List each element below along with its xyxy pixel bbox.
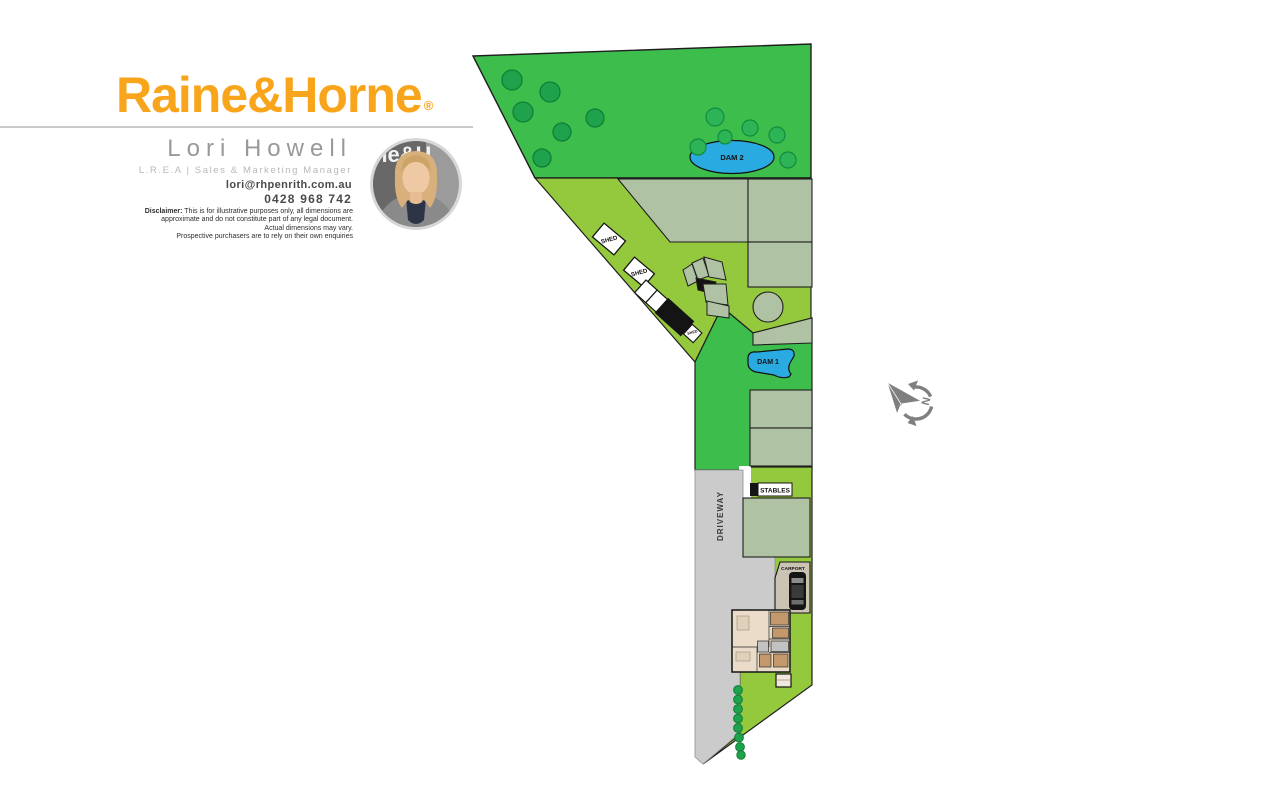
dam1-label: DAM 1	[757, 359, 779, 366]
tree-icon	[540, 82, 560, 102]
flyer-page: DAM 1 DAM 2 SHED	[0, 0, 1280, 805]
carport: CARPORT	[775, 562, 810, 613]
agent-phone: 0428 968 742	[0, 192, 352, 206]
tree-icon	[513, 102, 533, 122]
agent-title: L.R.E.A | Sales & Marketing Manager	[0, 165, 352, 176]
tree-icon	[718, 130, 732, 144]
tree-icon	[734, 686, 743, 695]
paddock-rect	[750, 390, 812, 428]
tree-icon	[780, 152, 796, 168]
car-icon	[789, 572, 806, 610]
tree-icon	[706, 108, 724, 126]
room	[774, 654, 789, 667]
tree-icon	[734, 724, 743, 733]
brand-wordmark: Raine&Horne	[116, 67, 422, 123]
round-yard	[753, 292, 783, 322]
photo-neck	[410, 192, 422, 204]
detached-room	[776, 674, 791, 687]
tree-icon	[502, 70, 522, 90]
tree-icon	[734, 705, 743, 714]
tree-icon	[737, 751, 745, 759]
paddock-rect	[750, 428, 812, 466]
agent-name: Lori Howell	[0, 135, 352, 163]
tree-icon	[586, 109, 604, 127]
disclaimer-line: Disclaimer: This is for illustrative pur…	[0, 208, 353, 216]
tree-icon	[690, 139, 706, 155]
compass-icon: N	[887, 381, 932, 427]
room	[773, 628, 789, 638]
stables-label: STABLES	[760, 488, 791, 495]
hall-and-wet-areas	[758, 641, 789, 652]
disclaimer-line: Prospective purchasers are to rely on th…	[0, 233, 353, 241]
tree-icon	[735, 733, 744, 742]
disclaimer-text: Disclaimer: This is for illustrative pur…	[0, 208, 353, 242]
tree-icon	[742, 120, 758, 136]
brand-logo: Raine&Horne®	[116, 66, 432, 124]
tree-icon	[734, 714, 743, 723]
paddock-rect	[748, 179, 812, 242]
tree-icon	[553, 123, 571, 141]
tree-icon	[769, 127, 785, 143]
tree-icon	[533, 149, 551, 167]
room	[771, 641, 789, 652]
registered-mark: ®	[424, 98, 433, 113]
furniture	[737, 616, 749, 630]
tree-icon	[734, 695, 743, 704]
stables-building	[750, 483, 758, 496]
paddock-rect	[748, 242, 812, 287]
room	[758, 641, 769, 652]
room	[760, 654, 772, 667]
disclaimer-line: approximate and do not constitute part o…	[0, 216, 353, 224]
stables-paddock	[743, 498, 810, 557]
disclaimer-line-text: This is for illustrative purposes only, …	[182, 208, 353, 215]
furniture	[736, 652, 750, 661]
carport-label: CARPORT	[781, 566, 805, 572]
photo-face	[403, 162, 430, 195]
header-divider	[0, 126, 473, 128]
disclaimer-label: Disclaimer:	[145, 208, 183, 215]
compass-north-label: N	[918, 396, 932, 407]
disclaimer-line: Actual dimensions may vary.	[0, 225, 353, 233]
driveway-label: DRIVEWAY	[716, 491, 725, 541]
room	[771, 612, 789, 625]
tree-icon	[736, 743, 745, 752]
agent-photo: ne&H	[368, 136, 464, 232]
dam2-label: DAM 2	[720, 153, 743, 162]
agent-email: lori@rhpenrith.com.au	[0, 179, 352, 191]
